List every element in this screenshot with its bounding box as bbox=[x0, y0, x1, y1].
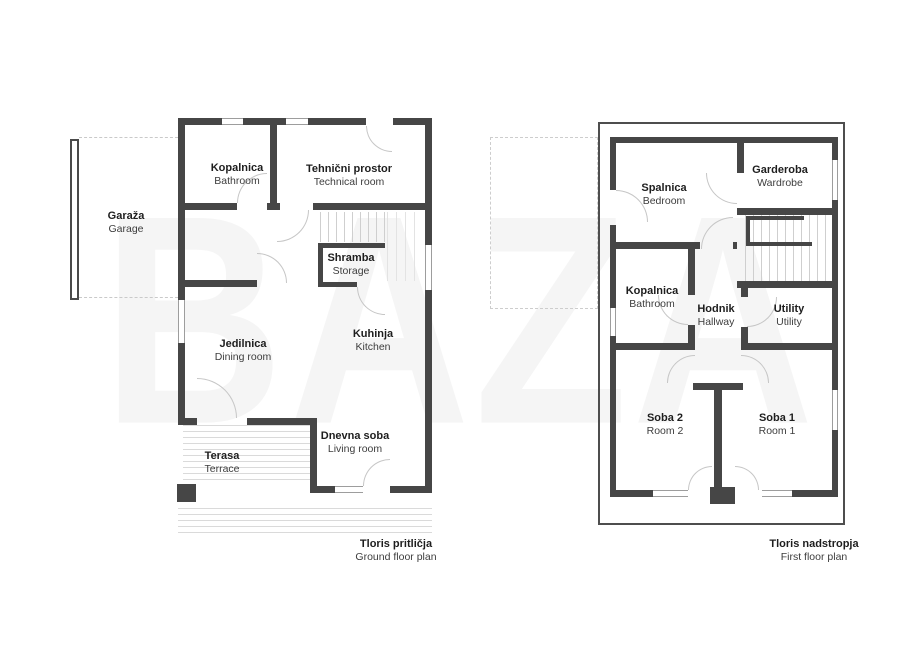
window bbox=[832, 160, 838, 200]
wall bbox=[741, 343, 838, 350]
wall bbox=[737, 281, 838, 288]
window bbox=[762, 490, 792, 497]
wall bbox=[693, 383, 743, 390]
window bbox=[832, 390, 838, 430]
wall bbox=[832, 143, 838, 160]
wall bbox=[610, 137, 838, 143]
room-label-garderoba: GarderobaWardrobe bbox=[752, 164, 808, 189]
wall bbox=[714, 390, 722, 490]
wall bbox=[610, 336, 616, 490]
wall bbox=[616, 343, 695, 350]
dashed-outline bbox=[490, 137, 598, 309]
wall bbox=[792, 490, 838, 497]
wall bbox=[610, 225, 616, 308]
wall bbox=[832, 200, 838, 390]
wall bbox=[688, 249, 695, 295]
wall bbox=[737, 208, 838, 215]
room-label-soba2: Soba 2Room 2 bbox=[647, 412, 684, 437]
room-label-hodnik: HodnikHallway bbox=[697, 303, 734, 328]
plan-caption-first-floor: Tloris nadstropjaFirst floor plan bbox=[769, 538, 858, 563]
room-label-spalnica: SpalnicaBedroom bbox=[641, 182, 686, 207]
wall bbox=[616, 242, 700, 249]
room-label-kopalnica-first: KopalnicaBathroom bbox=[626, 285, 679, 310]
room-label-utility: UtilityUtility bbox=[774, 303, 805, 328]
wall bbox=[737, 143, 744, 173]
wall bbox=[610, 143, 616, 190]
first-floor-plan: SpalnicaBedroom GarderobaWardrobe Kopaln… bbox=[0, 0, 919, 649]
stair-treads bbox=[745, 215, 832, 281]
window bbox=[653, 490, 688, 497]
room-label-soba1: Soba 1Room 1 bbox=[759, 412, 796, 437]
window bbox=[610, 308, 616, 336]
wall bbox=[610, 490, 653, 497]
stair-rail bbox=[746, 242, 812, 246]
wall bbox=[741, 288, 748, 297]
stair-rail bbox=[746, 216, 804, 220]
wall bbox=[832, 430, 838, 490]
floorplan-canvas: BAZA bbox=[0, 0, 919, 649]
wall bbox=[733, 242, 737, 249]
